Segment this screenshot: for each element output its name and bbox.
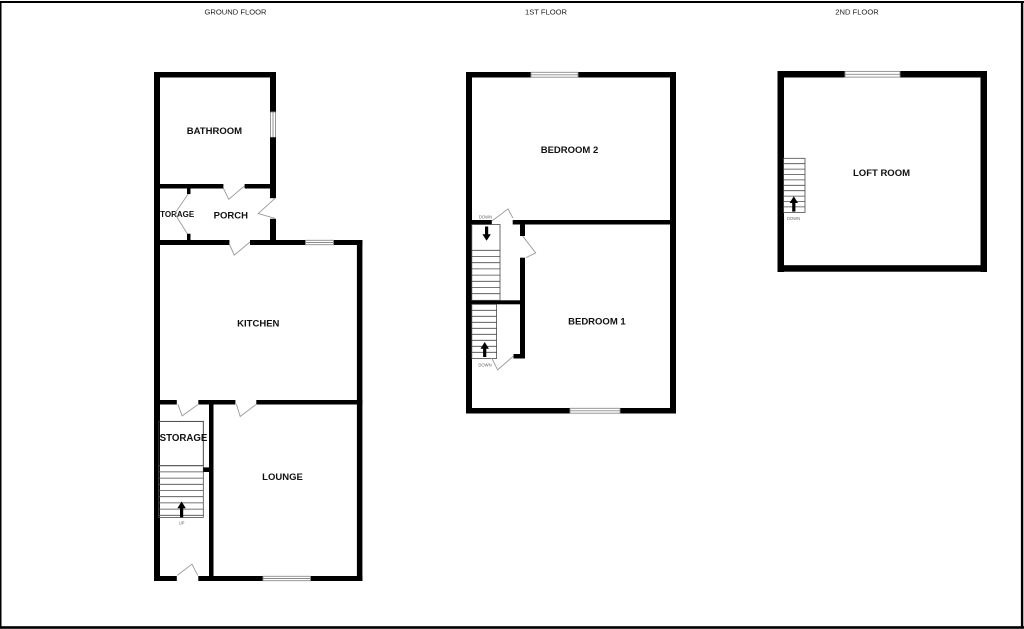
svg-text:PORCH: PORCH	[214, 211, 248, 222]
svg-text:2ND FLOOR: 2ND FLOOR	[835, 7, 879, 16]
svg-text:DOWN: DOWN	[478, 362, 491, 367]
svg-text:LOFT ROOM: LOFT ROOM	[853, 168, 910, 179]
svg-text:KITCHEN: KITCHEN	[237, 318, 279, 329]
svg-text:GROUND FLOOR: GROUND FLOOR	[204, 7, 267, 16]
svg-text:DOWN: DOWN	[787, 216, 800, 221]
svg-text:BEDROOM 2: BEDROOM 2	[541, 145, 599, 156]
svg-text:UP: UP	[179, 521, 185, 526]
svg-text:STORAGE: STORAGE	[155, 210, 195, 219]
svg-text:BEDROOM 1: BEDROOM 1	[568, 317, 626, 328]
svg-text:DOWN: DOWN	[479, 215, 492, 220]
svg-text:STORAGE: STORAGE	[160, 433, 208, 444]
svg-text:LOUNGE: LOUNGE	[262, 472, 303, 483]
svg-text:1ST FLOOR: 1ST FLOOR	[525, 7, 568, 16]
svg-text:BATHROOM: BATHROOM	[187, 126, 242, 137]
